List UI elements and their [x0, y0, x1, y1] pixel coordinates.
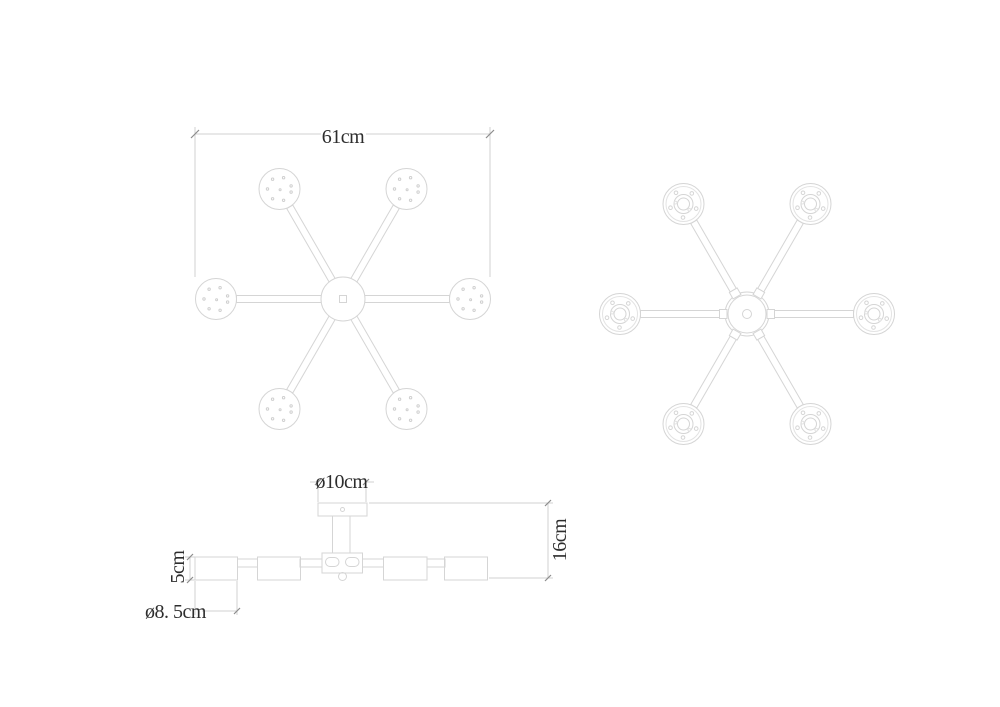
side-view-stem	[333, 516, 351, 553]
dimension-label-total-height: 16cm	[549, 518, 571, 561]
side-view	[195, 503, 488, 581]
side-view-body-knob	[339, 573, 347, 581]
side-view-body	[322, 553, 363, 573]
bottom-view-hub	[725, 292, 769, 336]
plan-view-lamp	[450, 279, 491, 320]
dimension-total-height	[369, 500, 553, 581]
plan-view-lamp	[386, 169, 427, 210]
side-view-arms	[238, 559, 446, 567]
technical-drawing: 61cm ø10cm 16cm 5cm	[0, 0, 1000, 707]
bottom-view-lamp	[854, 294, 895, 335]
bottom-view	[600, 184, 895, 445]
bottom-view-lamp	[663, 404, 704, 445]
plan-view-hub	[321, 277, 365, 321]
plan-view-lamp	[386, 389, 427, 430]
bottom-view-lamp	[790, 404, 831, 445]
dimensions: 61cm ø10cm 16cm 5cm	[145, 126, 571, 623]
bottom-view-lamp	[663, 184, 704, 225]
side-view-canopy-screw	[341, 508, 345, 512]
plan-view-lamp	[259, 389, 300, 430]
dimension-label-plan-width: 61cm	[322, 126, 365, 148]
side-view-body-slot	[346, 558, 360, 567]
drawing-canvas: 61cm ø10cm 16cm 5cm	[0, 0, 1000, 707]
side-view-body-slot	[326, 558, 340, 567]
plan-view	[196, 169, 491, 430]
dimension-label-canopy-diameter: ø10cm	[316, 471, 369, 493]
dimension-label-shade-height: 5cm	[167, 550, 189, 584]
side-view-canopy	[318, 503, 367, 516]
bottom-view-lamp	[600, 294, 641, 335]
dimension-plan-width	[191, 127, 494, 277]
bottom-view-lamp	[790, 184, 831, 225]
side-view-shades	[195, 557, 488, 580]
plan-view-lamp	[196, 279, 237, 320]
dimension-label-shade-diameter: ø8. 5cm	[145, 601, 207, 623]
plan-view-lamp	[259, 169, 300, 210]
